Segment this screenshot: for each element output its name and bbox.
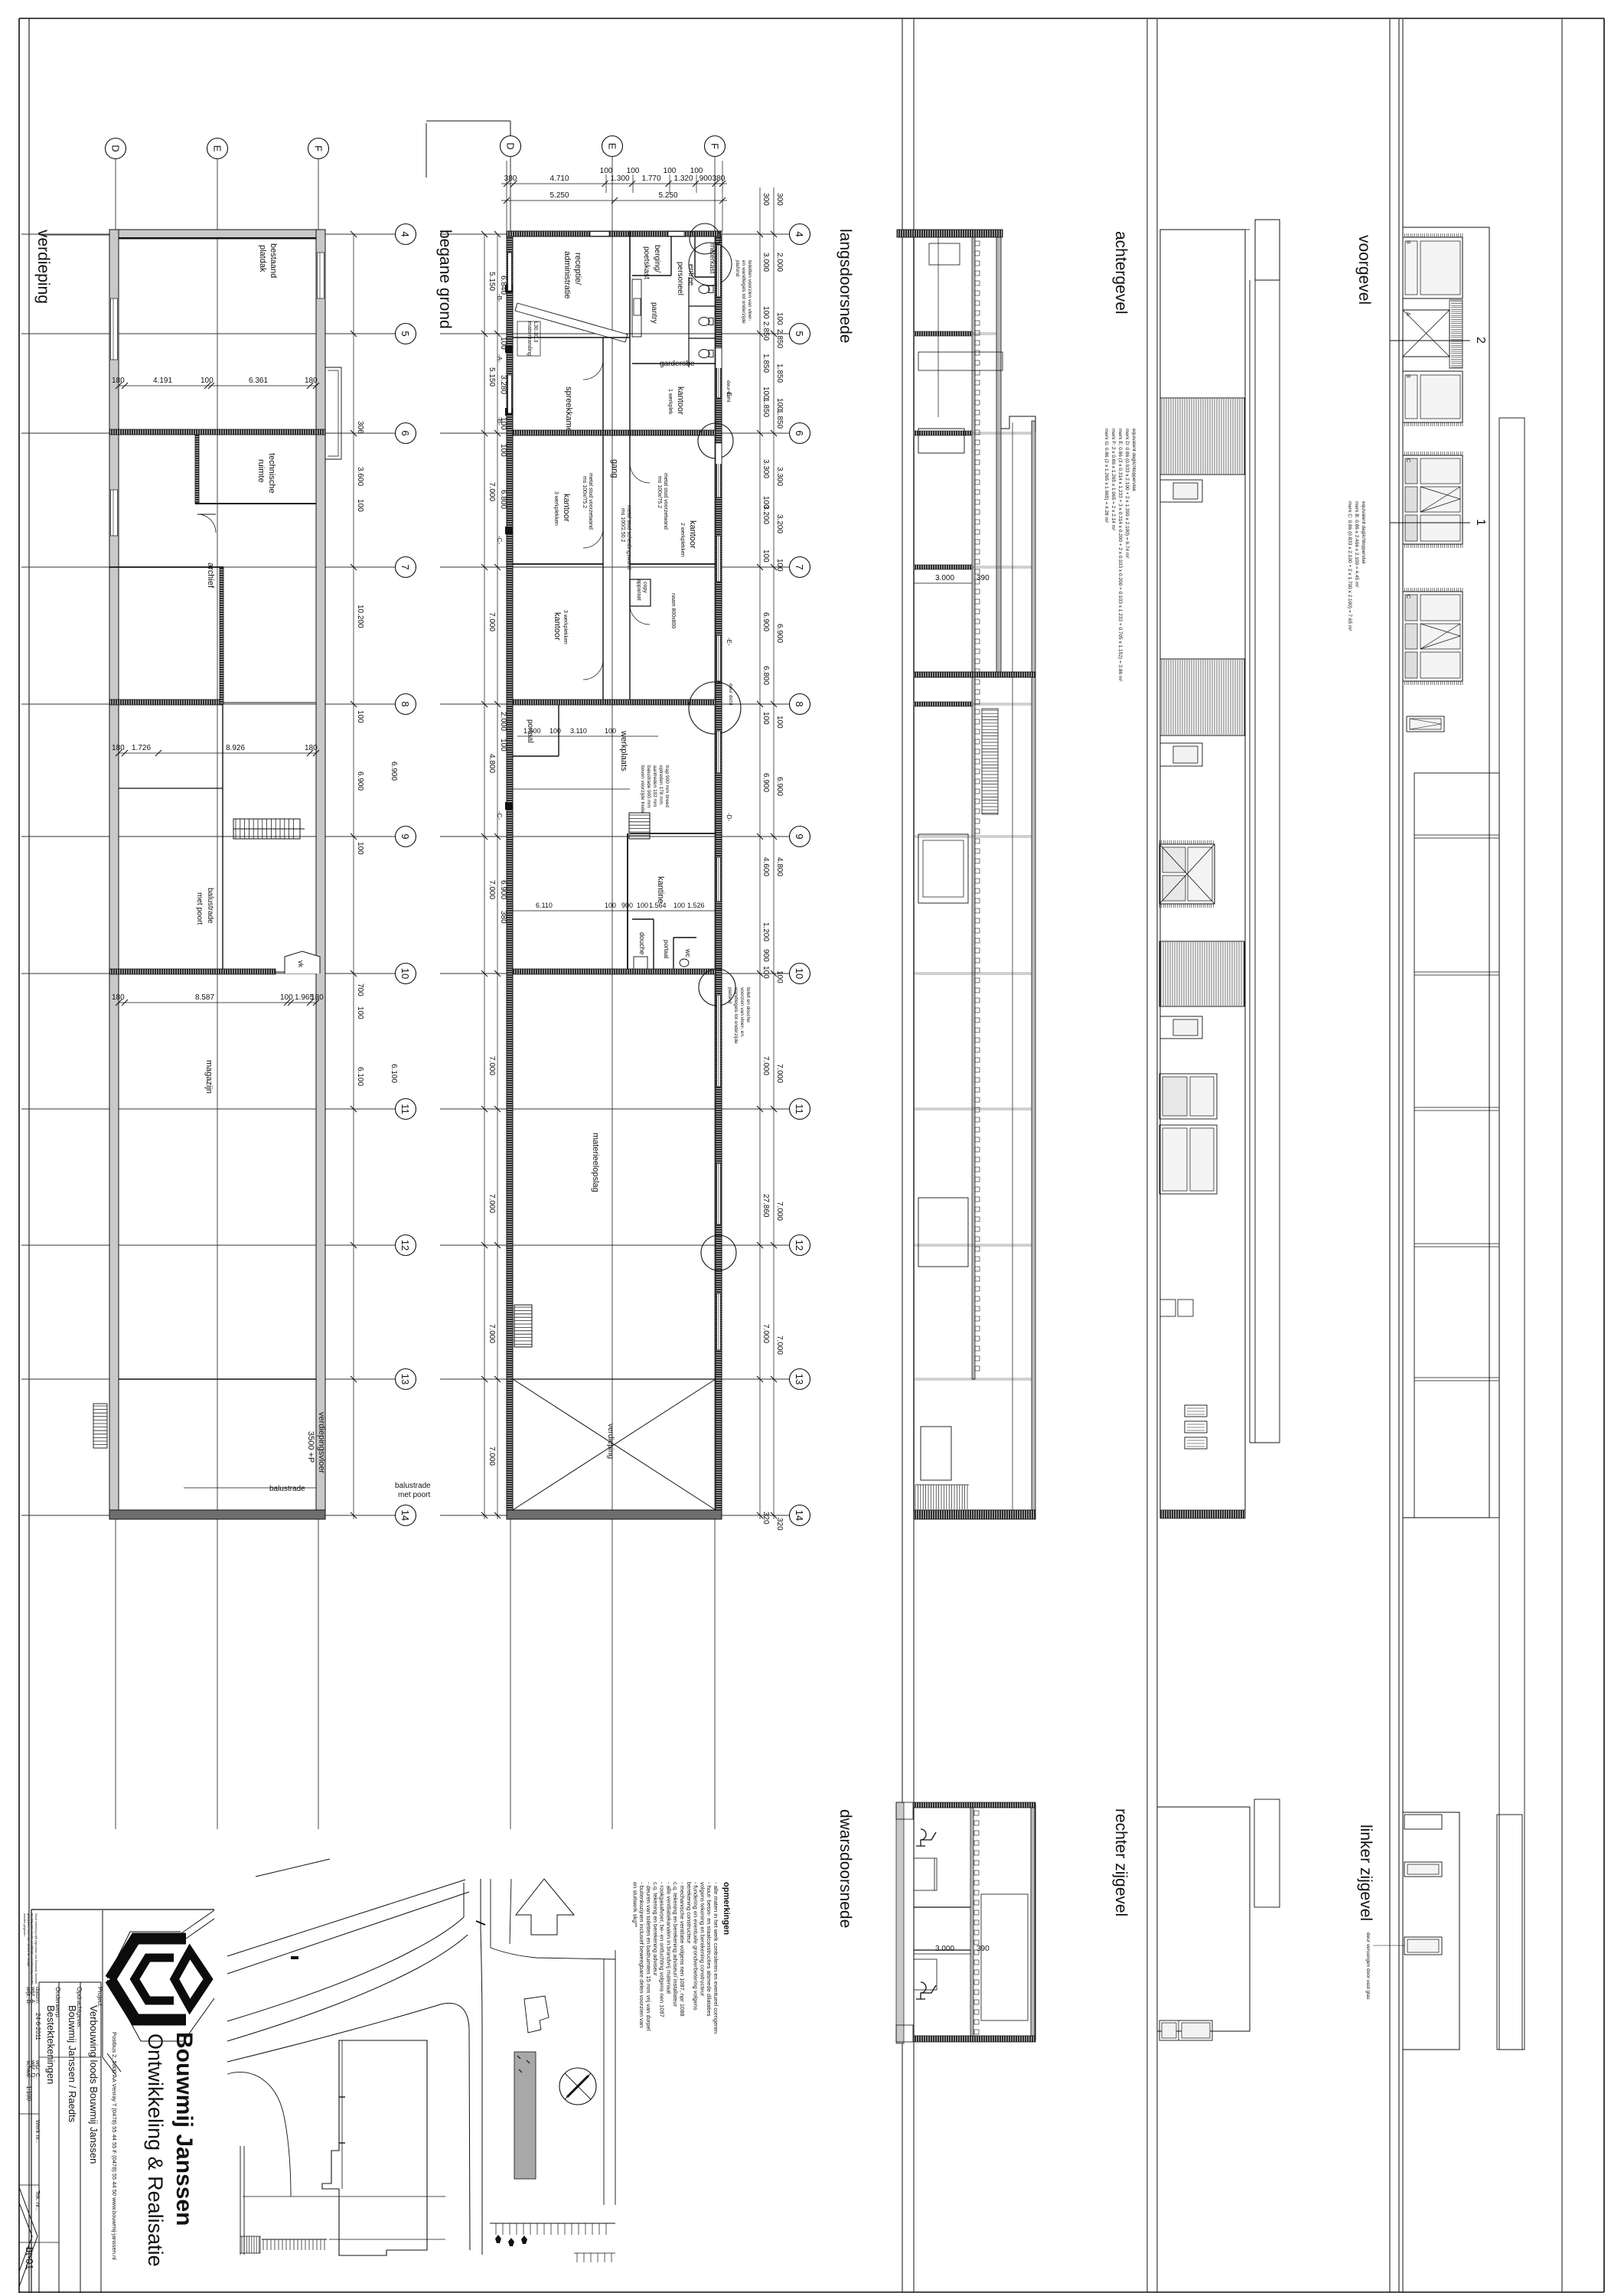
svg-text:garderobe: garderobe: [660, 360, 695, 368]
svg-text:ruimte: ruimte: [256, 459, 266, 483]
svg-text:3 werkplekken: 3 werkplekken: [553, 491, 559, 526]
svg-text:2.850: 2.850: [775, 329, 784, 348]
svg-text:6.800: 6.800: [761, 666, 770, 685]
svg-text:merk E: 0.86 (3 x 0.314 x 1.23: merk E: 0.86 (3 x 0.314 x 1.233 + 3 x 0.…: [1117, 429, 1123, 682]
svg-text:met poort: met poort: [398, 1491, 430, 1499]
svg-text:verdieping: verdieping: [606, 1424, 615, 1459]
svg-text:7.000: 7.000: [775, 1336, 784, 1355]
svg-text:27.860: 27.860: [761, 1194, 770, 1218]
svg-text:Ontwikkeling & Realisatie: Ontwikkeling & Realisatie: [144, 2033, 167, 2267]
svg-text:metal stud voorzetwand: metal stud voorzetwand: [588, 473, 593, 530]
svg-text:F: F: [709, 143, 721, 149]
svg-text:4: 4: [399, 231, 411, 236]
svg-text:306: 306: [356, 421, 364, 434]
svg-text:Bouwmij Janssen: Bouwmij Janssen: [171, 2032, 197, 2226]
svg-text:9: 9: [794, 833, 805, 839]
svg-text:1.320: 1.320: [673, 174, 693, 183]
svg-text:8: 8: [399, 701, 411, 706]
svg-text:100: 100: [499, 444, 507, 457]
svg-text:- hout- beton- en staalconstru: - hout- beton- en staalconstructies alsm…: [706, 1882, 713, 2017]
svg-text:900: 900: [621, 902, 633, 909]
svg-text:11: 11: [794, 1104, 805, 1114]
svg-text:6.800: 6.800: [499, 490, 507, 509]
svg-text:entree: entree: [686, 264, 695, 286]
svg-text:en wandtegels tot onderzijde: en wandtegels tot onderzijde: [741, 260, 746, 324]
svg-text:1.300: 1.300: [610, 174, 629, 183]
svg-text:3.600: 3.600: [356, 467, 364, 486]
svg-text:2.000: 2.000: [775, 253, 784, 272]
svg-text:kantoor: kantoor: [688, 520, 697, 549]
svg-text:10: 10: [794, 968, 805, 979]
svg-text:- alle maten in het werk contr: - alle maten in het werk controleren en …: [713, 1882, 719, 2033]
svg-text:Tek. nr.:: Tek. nr.:: [34, 2190, 41, 2210]
svg-text:matomranding: matomranding: [527, 321, 532, 356]
svg-text:1.500: 1.500: [523, 727, 541, 735]
svg-text:7.000: 7.000: [761, 1056, 770, 1075]
svg-text:100: 100: [605, 727, 616, 735]
svg-text:balustrade: balustrade: [395, 1482, 431, 1490]
svg-text:spreekkamer: spreekkamer: [564, 386, 573, 435]
svg-text:9: 9: [399, 833, 411, 839]
svg-text:poetskast: poetskast: [642, 246, 651, 279]
svg-text:-E-: -E-: [726, 638, 732, 646]
svg-text:7.000: 7.000: [488, 1446, 496, 1466]
svg-text:1.526: 1.526: [687, 902, 705, 909]
svg-text:6.900: 6.900: [499, 880, 507, 899]
svg-text:14: 14: [794, 1510, 805, 1521]
svg-text:balustrade 900 mm: balustrade 900 mm: [646, 765, 651, 808]
svg-text:aantreden 192 mm: aantreden 192 mm: [652, 765, 657, 807]
svg-text:300: 300: [761, 193, 770, 206]
svg-text:6.900: 6.900: [390, 762, 398, 781]
svg-text:D: D: [110, 145, 122, 152]
svg-text:100: 100: [356, 842, 364, 855]
svg-text:gang: gang: [610, 459, 619, 478]
svg-text:12: 12: [794, 1240, 805, 1251]
svg-text:met poort: met poort: [195, 892, 204, 925]
svg-text:trap 900 mm breed: trap 900 mm breed: [664, 765, 670, 807]
svg-text:24-6-2011: 24-6-2011: [34, 2013, 41, 2040]
svg-text:3.000: 3.000: [935, 574, 954, 582]
svg-text:100: 100: [605, 902, 616, 909]
svg-text:180: 180: [112, 377, 125, 385]
svg-text:kantine: kantine: [656, 876, 665, 903]
svg-text:8.926: 8.926: [226, 744, 245, 752]
svg-text:vk: vk: [297, 960, 305, 968]
svg-text:1.564: 1.564: [649, 902, 667, 909]
svg-text:3 werkplekken: 3 werkplekken: [563, 610, 568, 644]
svg-text:portaal: portaal: [663, 940, 670, 959]
svg-text:100: 100: [775, 312, 784, 325]
svg-text:100: 100: [761, 712, 770, 725]
svg-text:technische: technische: [267, 453, 276, 494]
svg-text:plafond: plafond: [735, 260, 740, 277]
svg-text:7: 7: [794, 564, 805, 569]
svg-text:900: 900: [761, 949, 770, 962]
svg-text:5: 5: [794, 331, 805, 336]
svg-text:toiletten voorzien van vloer-: toiletten voorzien van vloer-: [747, 260, 752, 321]
svg-text:6.900: 6.900: [775, 624, 784, 643]
svg-text:2: 2: [1474, 337, 1487, 344]
svg-text:5.250: 5.250: [658, 191, 677, 200]
svg-text:3.200: 3.200: [775, 514, 784, 533]
svg-text:achtergevel: achtergevel: [1112, 231, 1130, 315]
svg-text:11: 11: [399, 1104, 411, 1114]
svg-text:100: 100: [499, 739, 507, 752]
svg-text:1.200: 1.200: [761, 922, 770, 941]
svg-text:deur vervangen door vast glas: deur vervangen door vast glas: [1365, 1932, 1371, 2000]
svg-text:2.850: 2.850: [761, 321, 770, 341]
svg-text:equivalent daglichtoppervlak: equivalent daglichtoppervlak: [1361, 501, 1366, 565]
svg-text:merk D: 0.86 (0.933 x 2.100 +: merk D: 0.86 (0.933 x 2.100 + 2 x 1.399 …: [1124, 429, 1130, 559]
svg-text:pantry: pantry: [650, 302, 658, 324]
svg-text:7: 7: [399, 564, 411, 569]
svg-text:100: 100: [356, 710, 364, 723]
svg-text:schaal:: schaal:: [25, 2060, 32, 2079]
svg-text:-C-: -C-: [496, 811, 503, 820]
svg-text:7.000: 7.000: [488, 880, 496, 899]
svg-text:5.250: 5.250: [549, 191, 569, 200]
svg-text:900: 900: [699, 174, 713, 183]
svg-text:7.000: 7.000: [488, 612, 496, 631]
svg-text:300: 300: [775, 193, 784, 206]
svg-text:6.110: 6.110: [536, 902, 553, 909]
svg-text:100: 100: [673, 902, 685, 909]
svg-text:toilet en douche: toilet en douche: [745, 987, 751, 1022]
svg-text:magazijn: magazijn: [204, 1060, 214, 1094]
svg-text:rechter zijgevel: rechter zijgevel: [1112, 1808, 1130, 1916]
svg-text:D: D: [505, 142, 517, 149]
svg-text:6.361: 6.361: [249, 377, 268, 385]
svg-text:merk G: 0.86 (2 x 1.265 x 1.96: merk G: 0.86 (2 x 1.265 x 1.965) = 4.28 …: [1104, 429, 1109, 523]
svg-text:balustrade: balustrade: [269, 1485, 305, 1493]
svg-text:boven voorzijde trede: boven voorzijde trede: [640, 765, 645, 814]
svg-text:naam 800x800: naam 800x800: [670, 593, 676, 628]
svg-text:6.900: 6.900: [761, 612, 770, 631]
svg-text:merk F: 2 x 0.86 x 1.265 x 1.9: merk F: 2 x 0.86 x 1.265 x 1.965 = 2 x 2…: [1110, 429, 1116, 531]
svg-text:4.191: 4.191: [153, 377, 172, 385]
svg-text:verdiepingsvloer: verdiepingsvloer: [317, 1412, 326, 1473]
svg-text:E: E: [607, 143, 618, 150]
svg-text:12: 12: [399, 1240, 411, 1251]
svg-text:6.100: 6.100: [390, 1064, 398, 1083]
svg-text:Bouwmij Janssen / Raedts: Bouwmij Janssen / Raedts: [67, 2005, 78, 2123]
svg-text:opmerkingen: opmerkingen: [722, 1882, 731, 1935]
svg-text:meterkast: meterkast: [709, 243, 716, 274]
svg-text:C: C: [1405, 458, 1410, 462]
svg-text:8.587: 8.587: [195, 993, 214, 1002]
svg-text:berekening constructeur: berekening constructeur: [686, 1882, 693, 1944]
svg-text:-C-: -C-: [496, 536, 503, 544]
svg-text:3.000: 3.000: [935, 1945, 954, 1953]
svg-text:1: 1: [1474, 519, 1487, 526]
svg-text:3.110: 3.110: [570, 727, 587, 735]
svg-text:1.850: 1.850: [775, 409, 784, 429]
svg-text:180: 180: [112, 744, 125, 752]
svg-text:700: 700: [356, 983, 364, 996]
svg-text:- alle ventilatiekanalen in br: - alle ventilatiekanalen in brandvrij ma…: [665, 1882, 672, 1994]
svg-text:5.150: 5.150: [488, 367, 496, 386]
svg-text:langsdoorsnede: langsdoorsnede: [836, 229, 854, 343]
svg-text:worden gegeven.: worden gegeven.: [23, 1913, 27, 1937]
svg-text:metal stud voorzetwand: metal stud voorzetwand: [663, 473, 668, 530]
svg-text:100: 100: [549, 727, 561, 735]
svg-text:personeel: personeel: [676, 262, 684, 295]
svg-text:begane grond: begane grond: [436, 230, 454, 329]
svg-text:administratie: administratie: [563, 251, 572, 298]
svg-text:380: 380: [713, 174, 726, 183]
svg-text:werkplaats: werkplaats: [619, 730, 628, 771]
svg-text:voorgevel: voorgevel: [1355, 235, 1373, 305]
svg-text:7.000: 7.000: [488, 1056, 496, 1075]
svg-text:7.000: 7.000: [775, 1202, 784, 1221]
svg-text:deur dicht: deur dicht: [728, 683, 733, 706]
svg-text:optreden 178 mm: optreden 178 mm: [658, 765, 664, 804]
svg-text:14: 14: [399, 1510, 411, 1521]
svg-text:380: 380: [504, 174, 517, 183]
svg-text:1.850: 1.850: [761, 354, 770, 373]
svg-text:Werk nr.:: Werk nr.:: [34, 2120, 41, 2143]
svg-text:c.q. tekening en berekening ad: c.q. tekening en berekening adviseur: [652, 1882, 659, 1976]
svg-text:linker zijgevel: linker zijgevel: [1357, 1825, 1375, 1921]
svg-text:7.000: 7.000: [488, 1324, 496, 1343]
svg-text:1.850: 1.850: [761, 398, 770, 417]
svg-text:6.900: 6.900: [775, 777, 784, 796]
svg-text:plafond: plafond: [727, 987, 732, 1004]
svg-text:3.300: 3.300: [761, 459, 770, 478]
svg-text:verdieping: verdieping: [34, 230, 52, 304]
svg-text:7.000: 7.000: [488, 1194, 496, 1213]
svg-text:apparaat: apparaat: [636, 579, 641, 601]
svg-text:5: 5: [399, 331, 411, 336]
svg-text:1.726: 1.726: [132, 744, 151, 752]
svg-text:100: 100: [356, 1006, 364, 1019]
svg-text:volgens tekening en berekening: volgens tekening en berekening construct…: [699, 1882, 706, 1997]
svg-text:deur dicht: deur dicht: [726, 380, 731, 403]
svg-text:2 werkplekken: 2 werkplekken: [680, 523, 685, 557]
svg-text:-B-: -B-: [496, 417, 503, 426]
svg-text:4.600: 4.600: [761, 857, 770, 876]
svg-text:- deuren van toiletten en badr: - deuren van toiletten en badruimten 15 …: [645, 1882, 652, 2031]
svg-text:180: 180: [305, 744, 318, 752]
svg-text:3.200: 3.200: [761, 505, 770, 524]
svg-text:kantoor: kantoor: [562, 494, 571, 522]
svg-text:10: 10: [399, 968, 411, 979]
svg-text:metal stud scheidingswand: metal stud scheidingswand: [626, 505, 631, 569]
svg-text:100: 100: [761, 306, 770, 319]
svg-text:- buitenkozijnen inclusief bew: - buitenkozijnen inclusief beweegbare de…: [638, 1882, 645, 2027]
svg-text:equivalent daglichtoppervlak: equivalent daglichtoppervlak: [1131, 429, 1136, 492]
svg-text:100: 100: [356, 499, 364, 512]
svg-text:3500 +P: 3500 +P: [306, 1431, 315, 1463]
svg-text:1.770: 1.770: [641, 174, 660, 183]
svg-text:5.150: 5.150: [488, 272, 496, 291]
svg-text:ms 100x/75.2: ms 100x/75.2: [582, 476, 587, 508]
svg-text:receptie/: receptie/: [573, 253, 582, 285]
svg-text:100: 100: [761, 550, 770, 563]
svg-text:Verbouwing loods Bouwmij Janss: Verbouwing loods Bouwmij Janssen: [88, 2005, 99, 2164]
svg-text:180: 180: [305, 377, 318, 385]
svg-text:douche: douche: [638, 932, 646, 955]
svg-text:-B-: -B-: [496, 294, 503, 302]
svg-text:390: 390: [977, 574, 990, 582]
svg-text:100: 100: [627, 167, 640, 175]
svg-text:100: 100: [761, 966, 770, 979]
svg-text:F: F: [313, 145, 324, 152]
svg-text:dwarsdoorsnede: dwarsdoorsnede: [836, 1809, 854, 1928]
svg-text:bestaand: bestaand: [269, 243, 278, 278]
svg-text:1:100: 1:100: [25, 2086, 32, 2102]
svg-text:- rookgasafvoer, be- en ontluc: - rookgasafvoer, be- en ontluchting volg…: [659, 1882, 666, 2017]
svg-text:100: 100: [664, 167, 677, 175]
svg-text:6: 6: [399, 430, 411, 435]
svg-text:100: 100: [201, 377, 214, 385]
svg-text:en sluitwerk skg**: en sluitwerk skg**: [631, 1882, 638, 1927]
svg-text:4.710: 4.710: [549, 174, 569, 183]
svg-text:7.000: 7.000: [488, 482, 496, 501]
svg-text:C: C: [1405, 595, 1410, 598]
svg-text:380: 380: [499, 911, 507, 924]
svg-text:4: 4: [794, 231, 805, 236]
svg-text:- mechanische ventilatie volge: - mechanische ventilatie volgens nen 108…: [679, 1882, 686, 2017]
svg-text:180: 180: [112, 993, 125, 1002]
svg-text:13: 13: [399, 1374, 411, 1384]
svg-text:100: 100: [690, 167, 703, 175]
svg-text:B: B: [1405, 240, 1410, 244]
svg-text:10.200: 10.200: [356, 605, 364, 628]
svg-text:voorzien van vloer- en: voorzien van vloer- en: [739, 987, 745, 1036]
svg-text:-D-: -D-: [726, 813, 732, 821]
svg-text:390: 390: [977, 1945, 990, 1953]
svg-text:merk B: 0.86 x 2.466 x 2.100 =: merk B: 0.86 x 2.466 x 2.100 = 4.45 m²: [1354, 501, 1359, 588]
svg-text:L30.30.3: L30.30.3: [533, 321, 538, 342]
svg-text:merk C: 0.86 (0.833 x 2.100 +: merk C: 0.86 (0.833 x 2.100 + 2 x 1.700 …: [1347, 501, 1352, 631]
svg-text:B: B: [1405, 374, 1410, 378]
svg-text:kantoor: kantoor: [553, 612, 562, 641]
svg-text:6: 6: [794, 430, 805, 435]
svg-text:6.100: 6.100: [356, 1067, 364, 1086]
svg-text:6.900: 6.900: [761, 773, 770, 792]
svg-text:1 werkplek: 1 werkplek: [667, 389, 673, 415]
svg-text:13: 13: [794, 1374, 805, 1384]
svg-text:ms 100/2.50.2: ms 100/2.50.2: [620, 508, 625, 542]
svg-text:copy: copy: [642, 582, 647, 593]
svg-text:180: 180: [311, 993, 324, 1002]
svg-text:320: 320: [775, 1518, 784, 1531]
svg-text:7.000: 7.000: [761, 1324, 770, 1343]
svg-text:berging/: berging/: [653, 245, 661, 272]
svg-text:7.000: 7.000: [775, 1064, 784, 1083]
svg-text:100: 100: [280, 993, 293, 1002]
svg-text:Postbus 2, 5800 AA Venray T (: Postbus 2, 5800 AA Venray T (0478) 55 44…: [111, 2032, 118, 2260]
svg-text:1.850: 1.850: [775, 364, 784, 383]
svg-text:2.000: 2.000: [499, 712, 507, 731]
svg-text:wijz. B:: wijz. B:: [25, 1986, 32, 2005]
svg-text:materieelopslag: materieelopslag: [591, 1133, 600, 1192]
svg-text:4.800: 4.800: [775, 857, 784, 876]
svg-text:archief: archief: [206, 563, 215, 589]
svg-text:3.280: 3.280: [499, 375, 507, 394]
svg-text:A: A: [1405, 312, 1410, 316]
svg-text:-A-: -A-: [496, 354, 503, 363]
svg-text:Bestektekeningen: Bestektekeningen: [45, 2005, 57, 2084]
svg-text:platdak: platdak: [258, 245, 267, 272]
svg-text:balustrade: balustrade: [206, 888, 214, 924]
svg-text:6.900: 6.900: [356, 771, 364, 791]
svg-text:wc: wc: [684, 948, 692, 957]
svg-text:kantoor: kantoor: [676, 386, 685, 415]
svg-text:4.800: 4.800: [488, 754, 496, 773]
svg-text:E: E: [212, 145, 223, 152]
svg-text:- fundering en eventuele grond: - fundering en eventuele grondverbeterin…: [693, 1882, 699, 2011]
svg-text:ms 100x/75.2: ms 100x/75.2: [657, 476, 662, 508]
svg-text:100: 100: [775, 716, 784, 729]
svg-text:100: 100: [637, 902, 648, 909]
svg-text:100: 100: [600, 167, 613, 175]
svg-text:c.q. tekening en berekening ad: c.q. tekening en berekening adviseur/ in…: [672, 1882, 679, 2007]
svg-text:8: 8: [794, 701, 805, 706]
svg-text:3.300: 3.300: [775, 467, 784, 486]
svg-text:100: 100: [775, 970, 784, 983]
svg-text:3.000: 3.000: [761, 253, 770, 272]
